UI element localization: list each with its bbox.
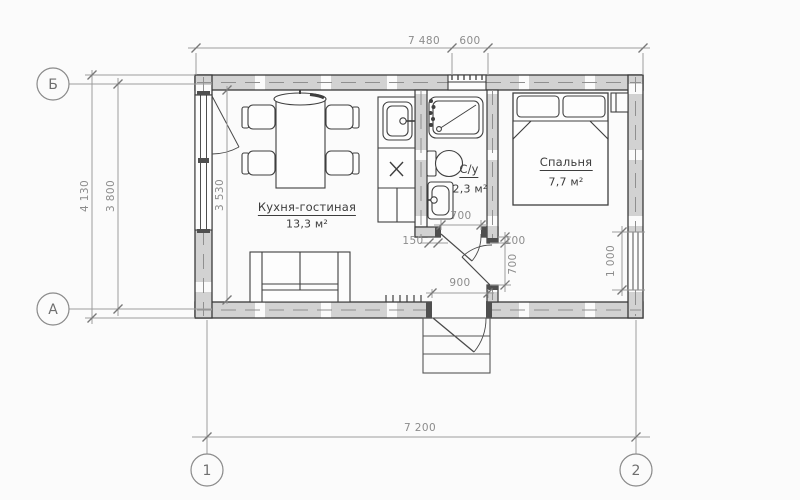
dim-left-outer-label: 4 130 (79, 180, 91, 212)
dim-left-axes-label: 3 800 (105, 180, 117, 212)
bathroom-room-label: С/у (459, 162, 478, 178)
pillow (563, 96, 605, 117)
toilet (427, 151, 463, 177)
floor-plan-canvas: Кухня-гостиная 13,3 м² С/у 2,3 м² Спальн… (0, 0, 800, 500)
kitchen-furniture (242, 90, 421, 302)
kitchen-room-label: Кухня-гостиная (258, 200, 356, 216)
top-window (448, 75, 486, 90)
left-window (195, 91, 212, 233)
dim-top-window-label: 600 (459, 35, 480, 47)
axis-label-1: 1 (203, 463, 212, 479)
door-openings (426, 226, 498, 319)
dim-entrance-door-label: 900 (449, 277, 470, 289)
kitchen-area-label: 13,3 м² (286, 218, 328, 231)
entrance-opening (432, 301, 486, 319)
entrance-door (433, 318, 486, 352)
pillow (517, 96, 559, 117)
bathroom-area-label: 2,3 м² (453, 183, 488, 196)
dim-wall-stub-label: 150 (402, 235, 423, 247)
axis-label-B: Б (48, 77, 58, 93)
dim-bedroom-window-label: 1 000 (605, 245, 617, 277)
bedside-table (611, 93, 628, 112)
dim-bedroom-door-label: 700 (507, 253, 519, 274)
axis-label-A: А (48, 302, 58, 318)
axis-label-2: 2 (632, 463, 641, 479)
bath-door-opening (441, 226, 481, 238)
shower-tray (429, 97, 484, 138)
sofa (250, 252, 350, 302)
dining-table (274, 90, 326, 188)
dim-top-overall-label: 7 480 (408, 35, 440, 47)
dim-bottom-axes-label: 7 200 (404, 422, 436, 434)
dim-kitchen-interior-label: 3 530 (214, 179, 226, 211)
bathroom-door (441, 234, 481, 261)
bathroom-fixtures (427, 97, 483, 219)
floor-plan-drawing (0, 0, 800, 500)
bathroom-sink (427, 182, 453, 219)
bedroom-room-label: Спальня (540, 155, 593, 171)
dim-bath-door-label: 700 (450, 210, 471, 222)
bedroom-window (628, 232, 643, 290)
dim-door-offset-label: 100 (504, 235, 525, 247)
floor-grate (386, 295, 421, 302)
bedroom-area-label: 7,7 м² (549, 176, 584, 189)
left-window-casement (212, 96, 239, 154)
kitchen-sink (383, 102, 415, 140)
porch-steps (423, 318, 490, 373)
